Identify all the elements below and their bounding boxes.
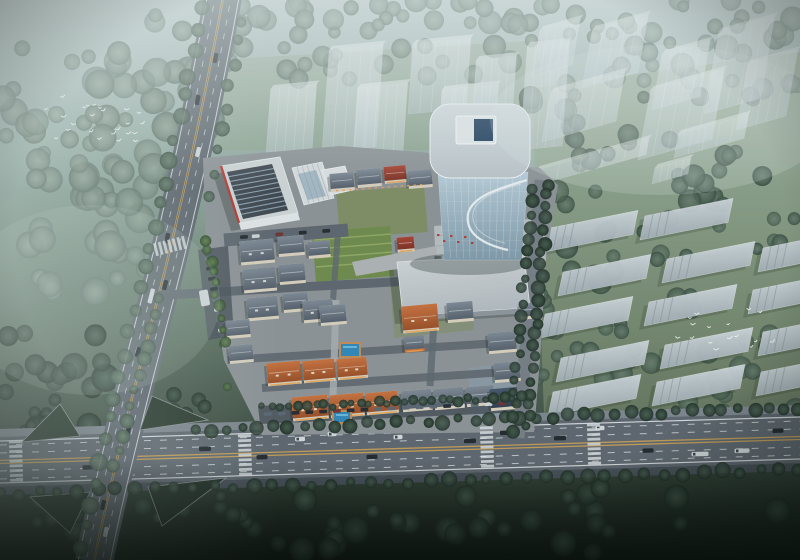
vignette	[0, 0, 800, 560]
development-aerial-rendering	[0, 0, 800, 560]
aerial-render-viewport	[0, 0, 800, 560]
